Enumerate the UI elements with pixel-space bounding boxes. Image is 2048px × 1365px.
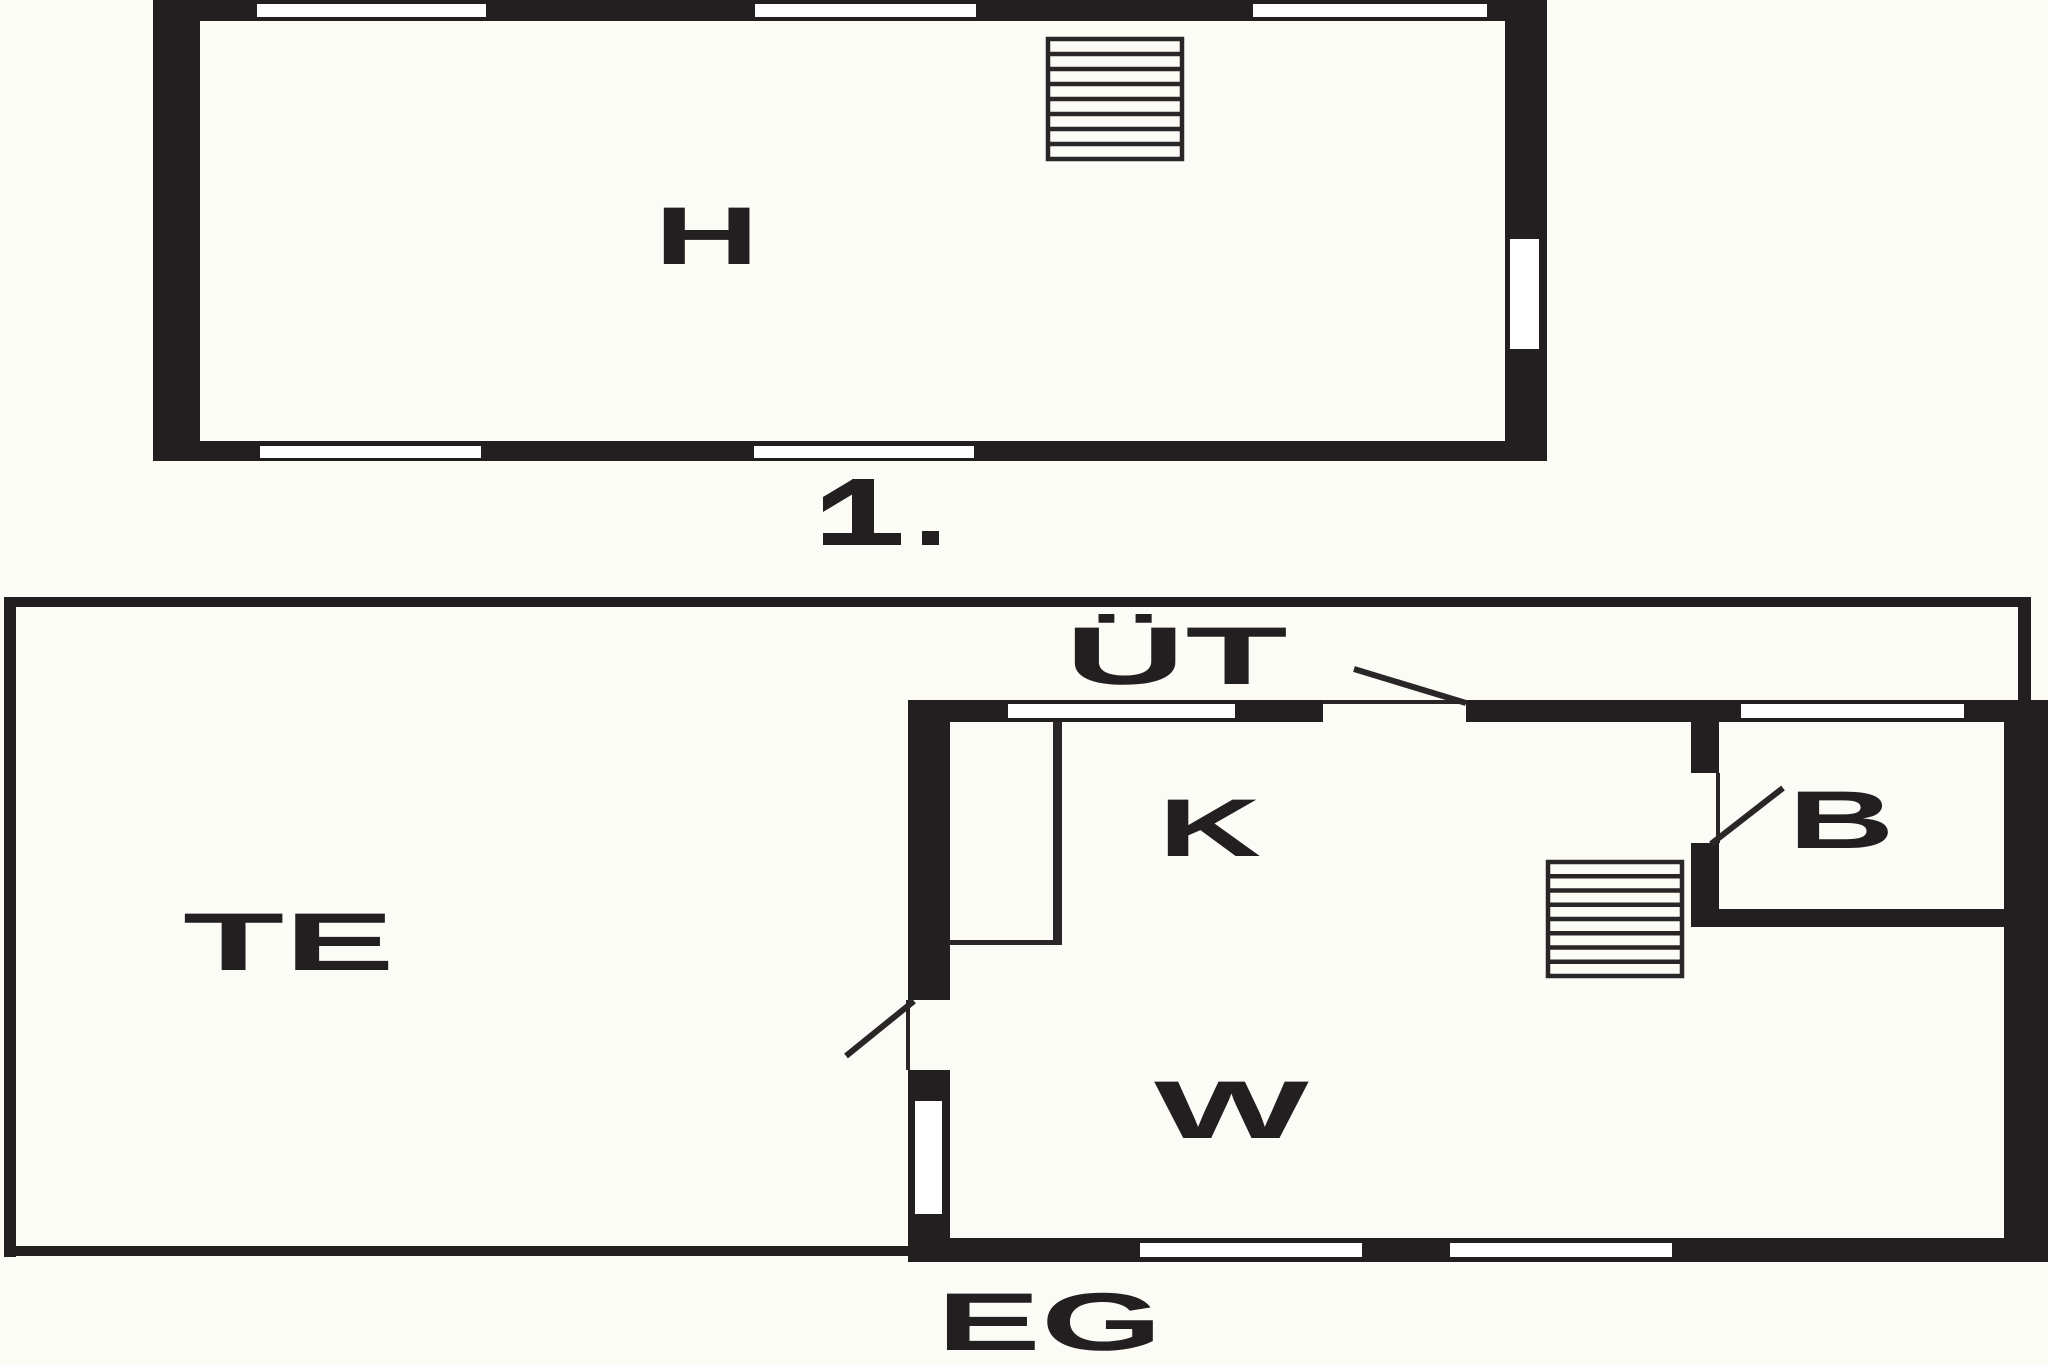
svg-text:EG: EG	[937, 1276, 1163, 1365]
svg-text:H: H	[654, 190, 759, 282]
svg-text:TE: TE	[183, 896, 395, 988]
svg-text:B: B	[1788, 775, 1895, 866]
svg-text:W: W	[1154, 1065, 1310, 1156]
svg-text:ÜT: ÜT	[1065, 610, 1288, 702]
svg-text:K: K	[1158, 782, 1261, 874]
